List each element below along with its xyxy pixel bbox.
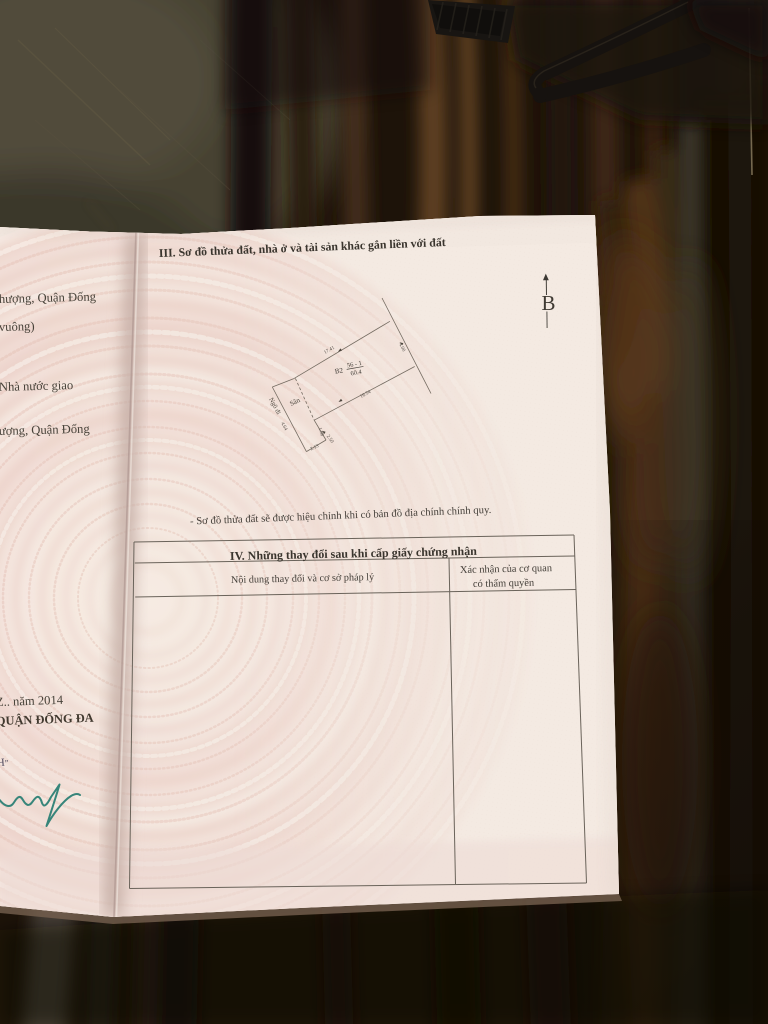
- svg-text:Xác nhận của cơ quan: Xác nhận của cơ quan: [460, 563, 553, 576]
- svg-text:B: B: [542, 291, 556, 315]
- svg-text:vuông): vuông): [0, 319, 35, 334]
- svg-text:ượng, Quận Đống: ượng, Quận Đống: [0, 422, 91, 438]
- svg-text:có thẩm quyền: có thẩm quyền: [473, 578, 535, 590]
- svg-text:Nhà nước giao: Nhà nước giao: [0, 378, 73, 394]
- svg-text:Z.. năm 2014: Z.. năm 2014: [0, 693, 64, 709]
- svg-text:H”: H”: [0, 756, 9, 769]
- svg-text:hượng, Quận Đống: hượng, Quận Đống: [0, 289, 97, 306]
